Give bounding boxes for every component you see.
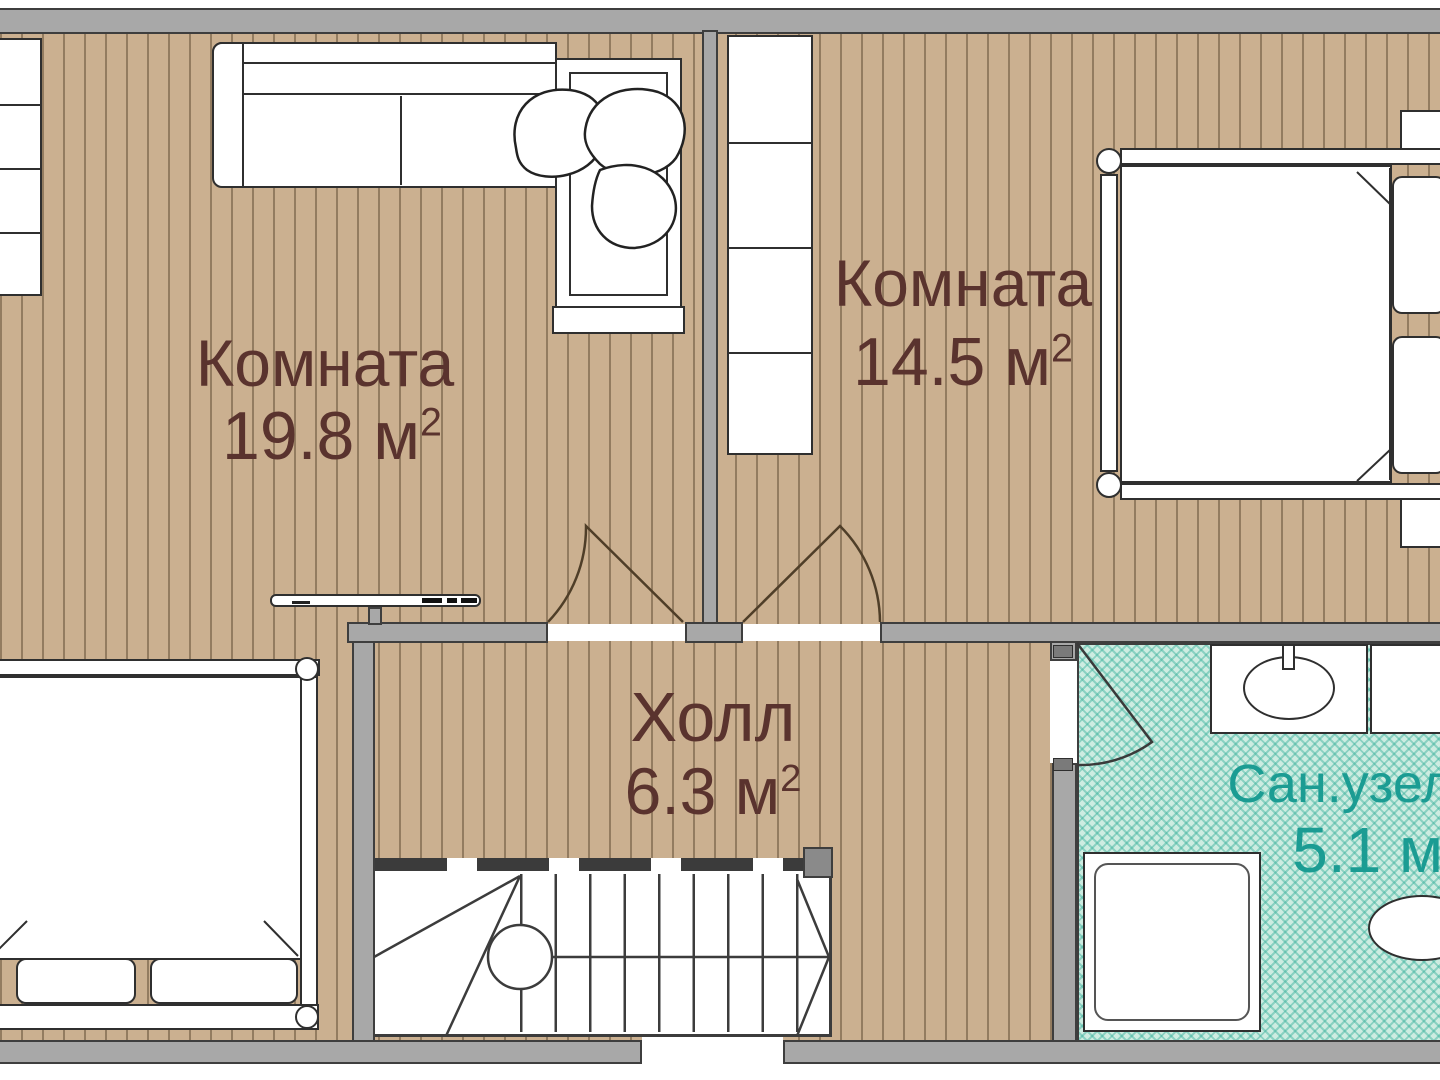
pillow-icon (1392, 336, 1440, 474)
bed-post (295, 1005, 319, 1029)
bed-rail-left (1100, 174, 1118, 472)
hall-label: Холл (631, 682, 796, 752)
shower-tray-icon (1083, 852, 1261, 1032)
sink-tap (1282, 644, 1295, 670)
wall-bottom-right (783, 1040, 1440, 1064)
pillow-icon (1392, 176, 1440, 314)
bed-headboard-line (1389, 168, 1391, 480)
bed-mattress (1120, 165, 1392, 483)
tv-icon (270, 594, 481, 607)
bathroom-doorway (1050, 643, 1077, 763)
room1-label: Комната (196, 330, 454, 396)
stair-handrail (375, 858, 805, 871)
bed-rail-right (300, 676, 318, 1006)
room2-label: Комната (834, 250, 1092, 316)
double-bed-icon (1120, 148, 1440, 165)
wall-mid-left (347, 622, 548, 643)
door-jamb-mark-bottom (1053, 758, 1073, 771)
wall-mid-right (880, 622, 1440, 643)
door-gap-room2 (743, 624, 880, 641)
sofa-chaise-foot (552, 306, 685, 334)
hall-area: 6.3 м2 (625, 758, 802, 824)
nightstand-icon (1400, 496, 1440, 548)
stairs (375, 858, 832, 1037)
wall-bed-stairs (352, 641, 375, 1042)
corner-sofa-icon (212, 42, 557, 95)
bed-headboard (0, 1004, 319, 1030)
stairwell-opening (642, 1037, 783, 1080)
bathroom-label: Сан.узел (1227, 757, 1440, 811)
wardrobe-icon (727, 35, 813, 455)
bed-post (1096, 472, 1122, 498)
vanity-counter (1370, 644, 1440, 734)
floor-plan: Комната 19.8 м2 Комната 14.5 м2 Холл 6.3… (0, 0, 1440, 1080)
stair-newel-post (803, 847, 833, 878)
wall-bottom-left (0, 1040, 642, 1064)
pillow-icon (16, 958, 136, 1004)
room1-area: 19.8 м2 (222, 402, 442, 470)
door-gap-room1 (548, 624, 685, 641)
tv-mount (368, 607, 382, 625)
bathroom-area: 5.1 м2 (1292, 818, 1440, 882)
pillow-icon (150, 958, 298, 1004)
door-jamb-mark-top (1053, 645, 1073, 658)
bed-mattress (0, 676, 302, 960)
sofa-chaise (555, 58, 682, 310)
shelf-unit-icon (0, 38, 42, 296)
bed-post (1096, 148, 1122, 174)
wall-top (0, 8, 1440, 34)
wall-bathroom-left (1052, 763, 1077, 1042)
wall-mid-stub (685, 622, 743, 643)
bed-rail-bottom (1120, 483, 1440, 500)
double-bed-icon (0, 659, 320, 676)
stair-treads (520, 874, 832, 1032)
room2-area: 14.5 м2 (853, 328, 1073, 396)
sofa-arm-left (212, 42, 244, 188)
wall-rooms-divider (702, 30, 718, 626)
bed-post (295, 657, 319, 681)
sofa-seat-divider (400, 96, 402, 185)
